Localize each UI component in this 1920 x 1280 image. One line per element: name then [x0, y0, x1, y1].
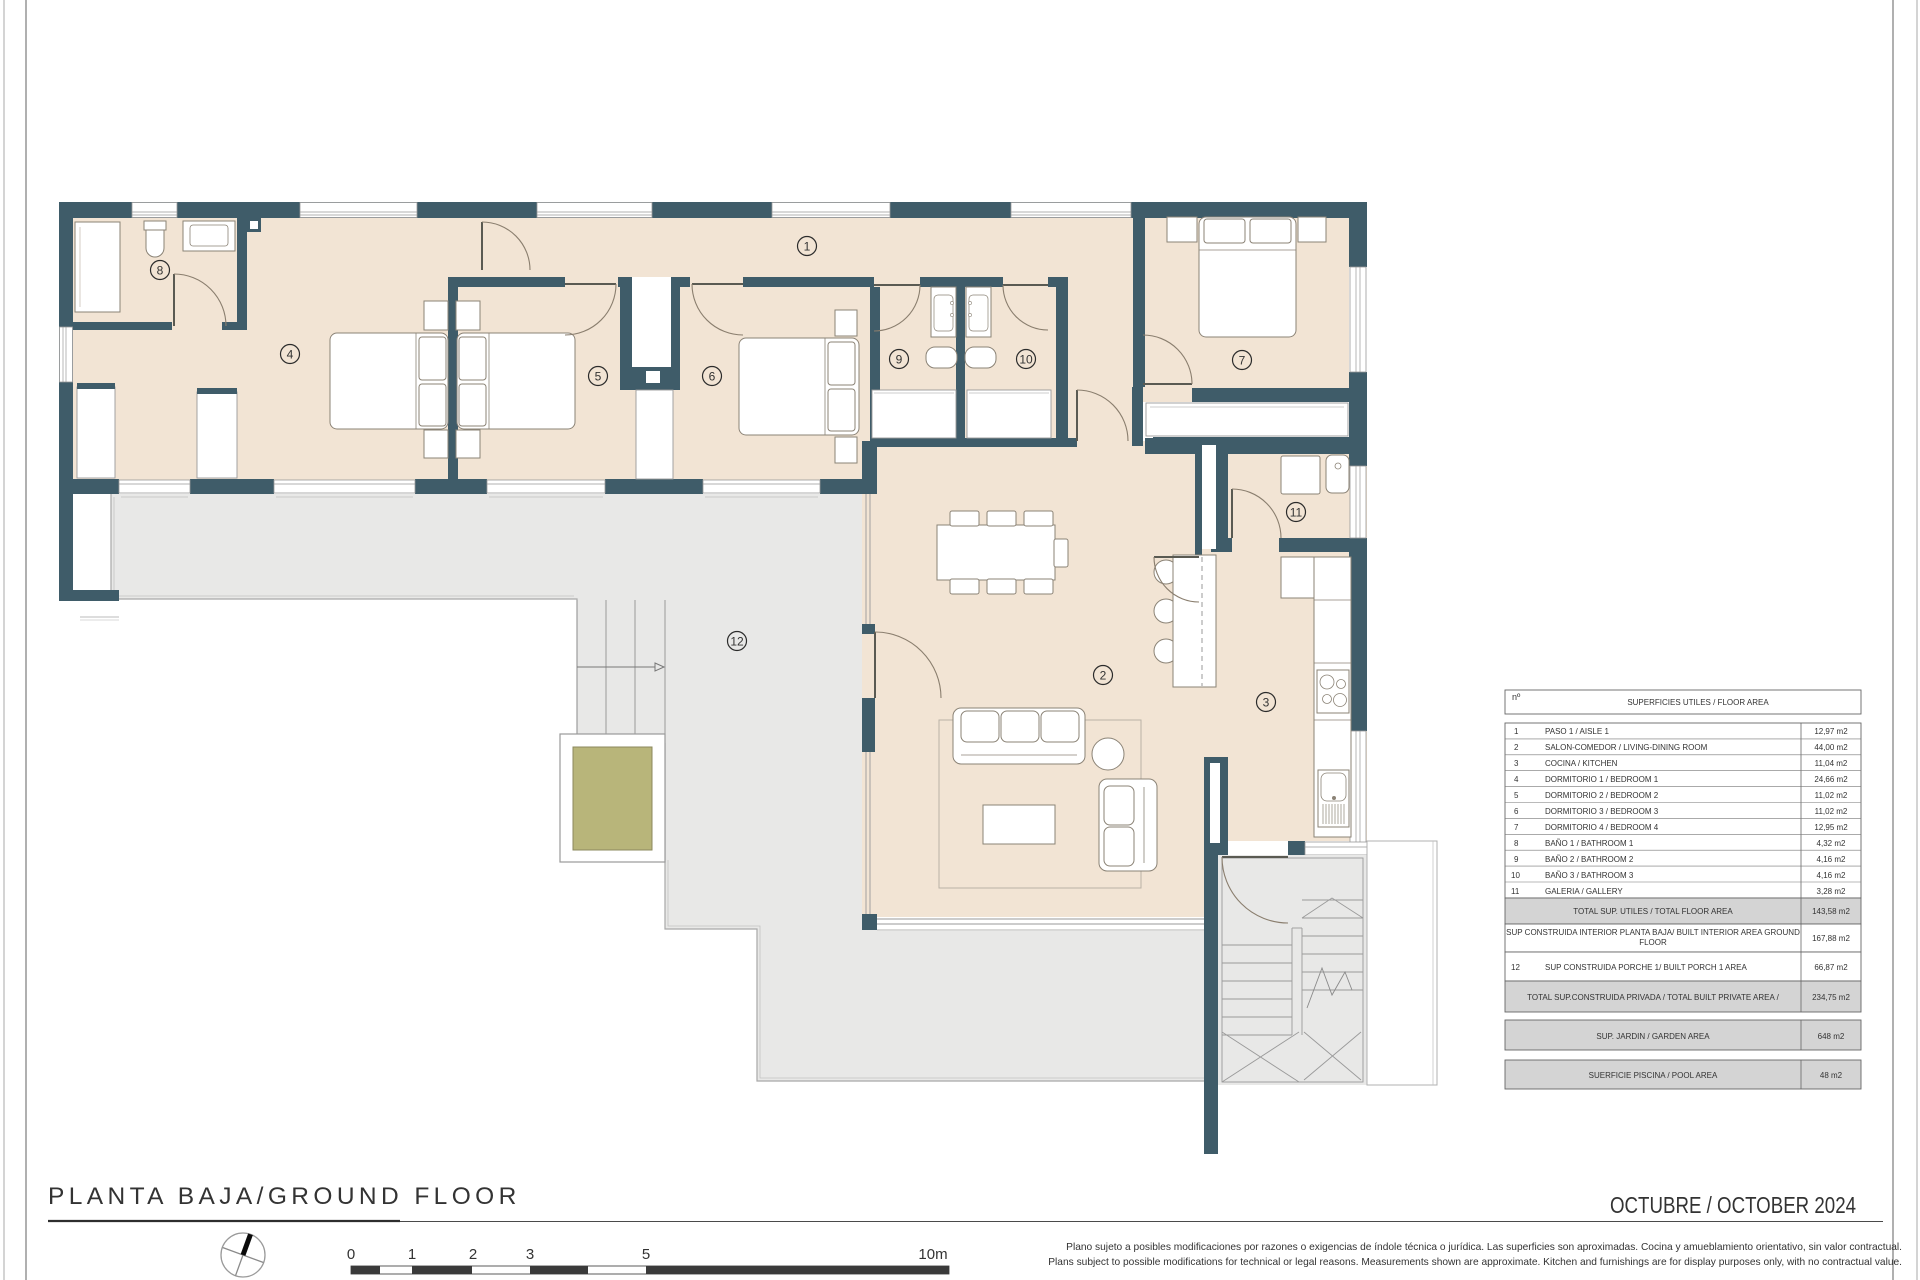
svg-text:TOTAL SUP. UTILES / TOTAL FLOO: TOTAL SUP. UTILES / TOTAL FLOOR AREA: [1573, 907, 1733, 916]
svg-text:SUERFICIE PISCINA / POOL AREA: SUERFICIE PISCINA / POOL AREA: [1589, 1071, 1718, 1080]
svg-text:7: 7: [1514, 823, 1519, 832]
svg-text:4: 4: [287, 348, 294, 362]
svg-text:GALERIA / GALLERY: GALERIA / GALLERY: [1545, 887, 1623, 896]
svg-text:4,16 m2: 4,16 m2: [1817, 871, 1846, 880]
svg-text:SUPERFICIES UTILES / FLOOR AR: SUPERFICIES UTILES / FLOOR AREA: [1627, 698, 1769, 707]
svg-text:5: 5: [595, 370, 602, 384]
svg-text:12: 12: [1511, 963, 1520, 972]
svg-text:COCINA / KITCHEN: COCINA / KITCHEN: [1545, 759, 1618, 768]
svg-text:5: 5: [1514, 791, 1519, 800]
svg-text:4,32 m2: 4,32 m2: [1817, 839, 1846, 848]
svg-text:44,00 m2: 44,00 m2: [1814, 743, 1848, 752]
svg-text:2: 2: [469, 1246, 477, 1263]
svg-text:10: 10: [1019, 353, 1033, 367]
svg-text:FLOOR: FLOOR: [1639, 938, 1667, 947]
svg-text:5: 5: [642, 1246, 650, 1263]
svg-text:BAÑO 1 / BATHROOM 1: BAÑO 1 / BATHROOM 1: [1545, 839, 1634, 848]
svg-text:4: 4: [1514, 775, 1519, 784]
svg-text:167,88 m2: 167,88 m2: [1812, 934, 1850, 943]
svg-text:66,87 m2: 66,87 m2: [1814, 963, 1848, 972]
svg-text:PLANTA BAJA/GROUND FLOOR: PLANTA BAJA/GROUND FLOOR: [48, 1183, 521, 1210]
svg-text:9: 9: [1514, 855, 1519, 864]
svg-text:DORMITORIO 3 / BEDROOM 3: DORMITORIO 3 / BEDROOM 3: [1545, 807, 1659, 816]
svg-text:12: 12: [730, 635, 744, 649]
svg-text:2: 2: [1100, 669, 1107, 683]
svg-text:9: 9: [896, 353, 903, 367]
svg-text:1: 1: [1514, 727, 1519, 736]
svg-text:SALON-COMEDOR / LIVING-DINING: SALON-COMEDOR / LIVING-DINING ROOM: [1545, 743, 1708, 752]
svg-text:DORMITORIO 2 / BEDROOM 2: DORMITORIO 2 / BEDROOM 2: [1545, 791, 1659, 800]
svg-text:11: 11: [1290, 506, 1303, 520]
svg-text:3: 3: [526, 1246, 534, 1263]
svg-text:10m: 10m: [918, 1246, 947, 1263]
svg-text:BAÑO 3 / BATHROOM 3: BAÑO 3 / BATHROOM 3: [1545, 871, 1634, 880]
svg-text:11,04 m2: 11,04 m2: [1815, 759, 1848, 768]
svg-text:7: 7: [1239, 354, 1246, 368]
svg-text:SUP. JARDIN / GARDEN AREA: SUP. JARDIN / GARDEN AREA: [1596, 1032, 1710, 1041]
svg-text:10: 10: [1511, 871, 1520, 880]
svg-text:DORMITORIO 1 / BEDROOM 1: DORMITORIO 1 / BEDROOM 1: [1545, 775, 1659, 784]
svg-text:6: 6: [1514, 807, 1519, 816]
svg-text:6: 6: [709, 370, 716, 384]
svg-text:Plano sujeto a posibles modifi: Plano sujeto a posibles modificaciones p…: [1066, 1242, 1902, 1253]
svg-text:234,75 m2: 234,75 m2: [1812, 993, 1850, 1002]
svg-text:TOTAL SUP.CONSTRUIDA PRIVADA /: TOTAL SUP.CONSTRUIDA PRIVADA / TOTAL BUI…: [1527, 993, 1779, 1002]
svg-text:OCTUBRE / OCTOBER 2024: OCTUBRE / OCTOBER 2024: [1610, 1192, 1856, 1218]
svg-text:143,58 m2: 143,58 m2: [1812, 907, 1850, 916]
svg-text:3,28 m2: 3,28 m2: [1817, 887, 1846, 896]
svg-text:SUP CONSTRUIDA PORCHE 1/ BUILT: SUP CONSTRUIDA PORCHE 1/ BUILT PORCH 1 A…: [1545, 963, 1747, 972]
svg-text:8: 8: [1514, 839, 1519, 848]
svg-text:11,02 m2: 11,02 m2: [1815, 791, 1848, 800]
svg-text:DORMITORIO 4 / BEDROOM 4: DORMITORIO 4 / BEDROOM 4: [1545, 823, 1659, 832]
svg-text:4,16 m2: 4,16 m2: [1817, 855, 1846, 864]
svg-text:SUP CONSTRUIDA INTERIOR PLANTA: SUP CONSTRUIDA INTERIOR PLANTA BAJA/ BUI…: [1506, 928, 1800, 937]
svg-text:BAÑO 2 / BATHROOM 2: BAÑO 2 / BATHROOM 2: [1545, 855, 1634, 864]
svg-text:nº: nº: [1512, 692, 1521, 702]
svg-text:Plans subject to possible modi: Plans subject to possible modifications …: [1048, 1257, 1902, 1268]
svg-text:48 m2: 48 m2: [1820, 1071, 1843, 1080]
svg-text:2: 2: [1514, 743, 1519, 752]
svg-text:1: 1: [408, 1246, 416, 1263]
svg-text:3: 3: [1263, 696, 1270, 710]
svg-text:3: 3: [1514, 759, 1519, 768]
svg-text:PASO 1 / AISLE 1: PASO 1 / AISLE 1: [1545, 727, 1609, 736]
svg-text:0: 0: [347, 1246, 355, 1263]
svg-text:8: 8: [157, 264, 164, 278]
svg-text:11,02 m2: 11,02 m2: [1815, 807, 1848, 816]
svg-text:648 m2: 648 m2: [1818, 1032, 1845, 1041]
svg-text:11: 11: [1511, 887, 1520, 896]
svg-text:12,97 m2: 12,97 m2: [1814, 727, 1848, 736]
svg-text:1: 1: [804, 240, 811, 254]
svg-text:12,95 m2: 12,95 m2: [1814, 823, 1848, 832]
svg-text:24,66 m2: 24,66 m2: [1814, 775, 1848, 784]
